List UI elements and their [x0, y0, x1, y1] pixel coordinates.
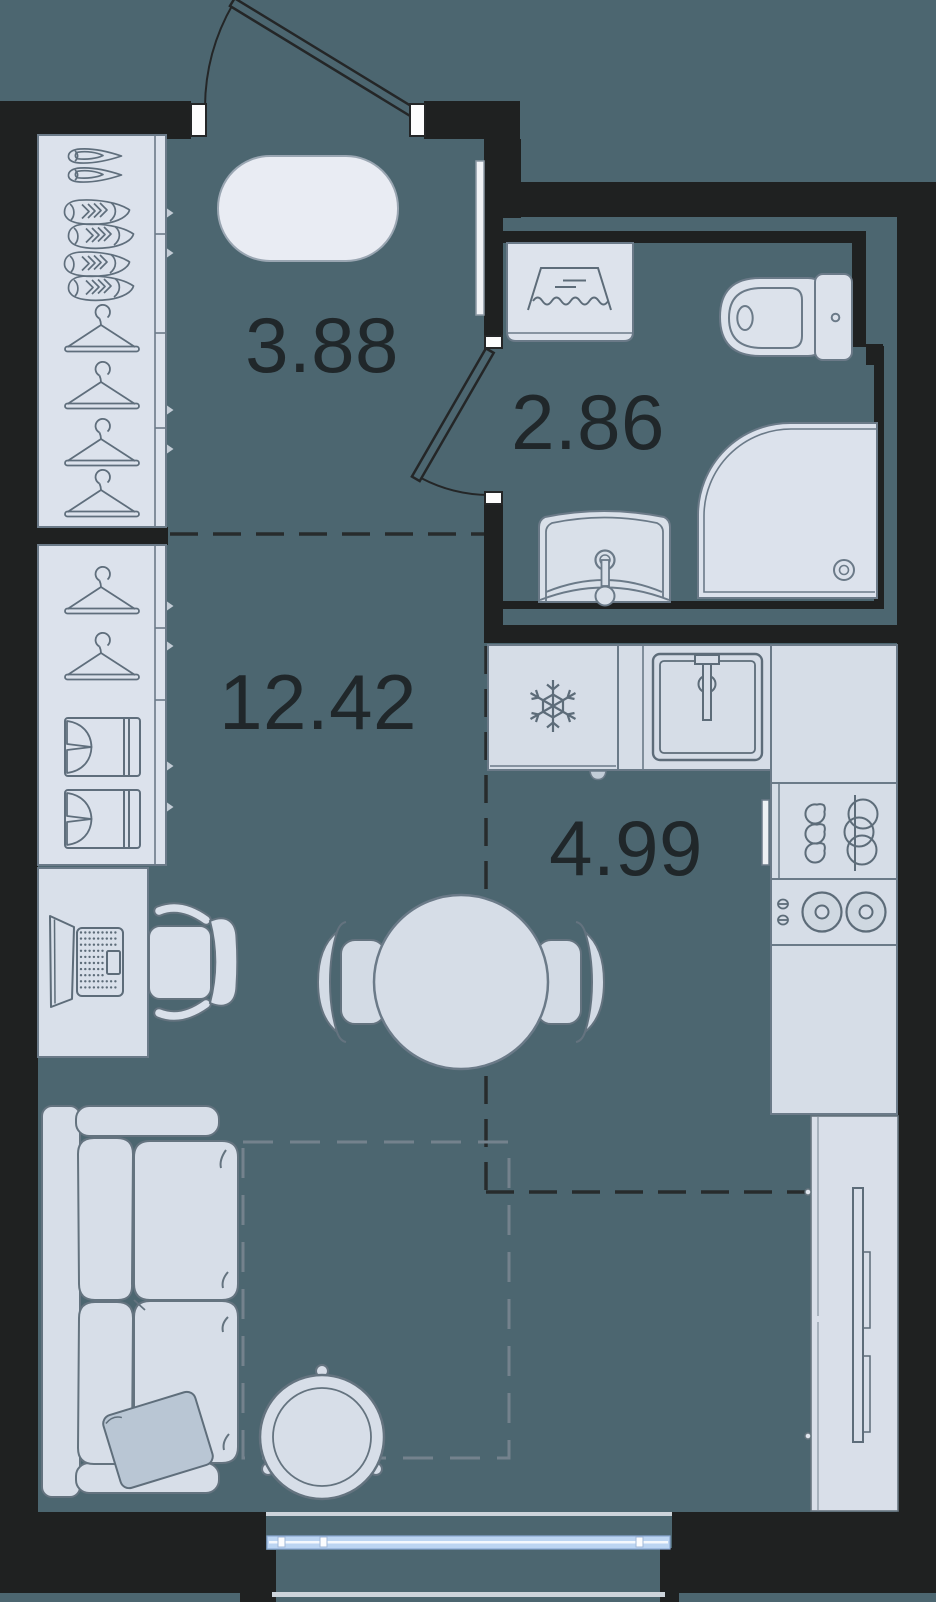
svg-text:12.42: 12.42	[219, 658, 417, 746]
svg-text:4.99: 4.99	[549, 804, 703, 892]
svg-text:2.86: 2.86	[511, 378, 665, 466]
svg-text:3.88: 3.88	[245, 301, 399, 389]
